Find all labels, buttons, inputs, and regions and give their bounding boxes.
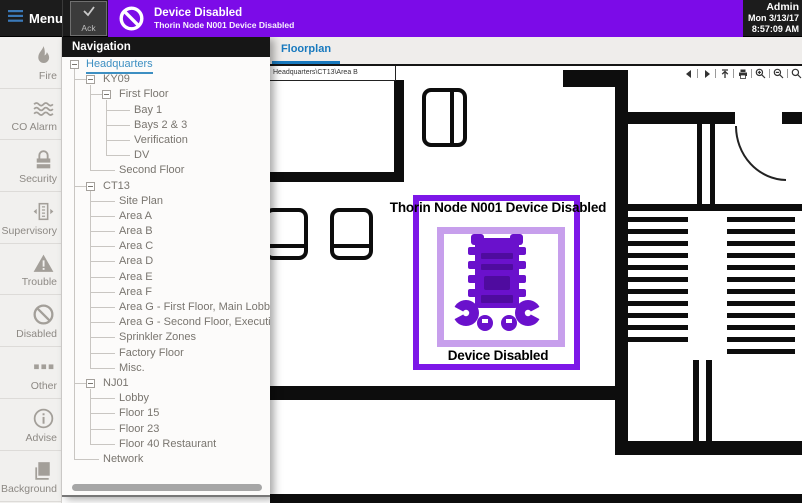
- tree-node-label: Area G - Second Floor, Executive Suites: [119, 315, 270, 330]
- sidebar-item-label: Advise: [25, 432, 57, 444]
- tree-connector-tick: [90, 94, 102, 95]
- tree-connector-tick: [74, 383, 86, 384]
- tree-node-label: Area F: [119, 285, 152, 300]
- time-label: 8:57:09 AM: [748, 24, 799, 35]
- tree-connector-tick: [90, 261, 115, 262]
- tree-node-label: Lobby: [119, 391, 149, 406]
- tree-node-label: Area C: [119, 239, 153, 254]
- hamburger-icon: [8, 9, 23, 27]
- tree-node-label: CT13: [103, 179, 130, 194]
- tree-connector-tick: [90, 322, 115, 323]
- tree-node-label: NJ01: [103, 376, 129, 391]
- collapse-expander-icon[interactable]: [102, 90, 111, 99]
- disabled-ban-icon: [118, 5, 145, 32]
- menu-label: Menu: [29, 11, 63, 26]
- date-label: Mon 3/13/17: [748, 13, 799, 24]
- tree-node-label: Area A: [119, 209, 152, 224]
- tree-node-area-g-second-floor-executive-suites[interactable]: Area G - Second Floor, Executive Suites: [62, 315, 270, 330]
- fire-icon: [31, 44, 56, 69]
- tree-node-label: Site Plan: [119, 194, 163, 209]
- tree-node-label: Factory Floor: [119, 346, 184, 361]
- navigation-panel: Navigation HeadquartersKY09First FloorBa…: [62, 37, 270, 497]
- tree-node-ct13[interactable]: CT13: [62, 179, 270, 194]
- tree-node-label: Misc.: [119, 361, 145, 376]
- tree-node-label: Area D: [119, 254, 153, 269]
- navigation-tree: HeadquartersKY09First FloorBay 1Bays 2 &…: [62, 57, 270, 483]
- toolbar-separator: [733, 69, 734, 78]
- tree-node-label: Area B: [119, 224, 153, 239]
- device-bottom-label: Device Disabled: [338, 348, 658, 363]
- tree-node-headquarters[interactable]: Headquarters: [62, 57, 270, 72]
- tree-node-label: DV: [134, 148, 149, 163]
- alert-title: Device Disabled: [154, 7, 294, 20]
- tree-node-network[interactable]: Network: [62, 452, 270, 467]
- navigation-panel-title: Navigation: [62, 37, 270, 57]
- tree-connector-tick: [74, 459, 99, 460]
- tab-bar: Floorplan: [270, 37, 802, 66]
- tree-node-verification[interactable]: Verification: [62, 133, 270, 148]
- tab-floorplan[interactable]: Floorplan: [272, 37, 340, 64]
- toolbar-separator: [697, 69, 698, 78]
- navigation-horizontal-scrollbar[interactable]: [72, 484, 262, 491]
- tab-floorplan-label: Floorplan: [272, 37, 340, 61]
- tree-connector-tick: [90, 292, 115, 293]
- toolbar-separator: [769, 69, 770, 78]
- tree-node-area-f[interactable]: Area F: [62, 285, 270, 300]
- tree-node-lobby[interactable]: Lobby: [62, 391, 270, 406]
- toolbar-forward-button[interactable]: [701, 68, 712, 79]
- trouble-icon: [31, 251, 56, 276]
- tree-node-area-g-first-floor-main-lobby[interactable]: Area G - First Floor, Main Lobby: [62, 300, 270, 315]
- topbar-separator: [62, 0, 63, 37]
- tree-connector-tick: [90, 337, 115, 338]
- other-icon: [31, 354, 56, 379]
- toolbar-zoom-out-button[interactable]: [773, 68, 784, 79]
- sidebar-item-label: Other: [31, 380, 57, 392]
- sidebar-item-supervisory[interactable]: Supervisory: [0, 192, 61, 244]
- ack-button[interactable]: Ack: [70, 1, 107, 36]
- top-bar: Menu Ack Device Disabled Thorin Node N00…: [0, 0, 802, 37]
- tree-node-label: Area G - First Floor, Main Lobby: [119, 300, 270, 315]
- sidebar-item-label: Supervisory: [2, 225, 57, 237]
- tree-connector-tick: [74, 79, 86, 80]
- tree-connector-tick: [106, 155, 130, 156]
- main-area: Floorplan Headquarters\CT13\Area B: [270, 37, 802, 503]
- tree-node-label: KY09: [103, 72, 130, 87]
- alert-banner[interactable]: Device Disabled Thorin Node N001 Device …: [108, 0, 743, 37]
- status-area: Admin Mon 3/13/17 8:57:09 AM: [748, 2, 799, 35]
- tree-connector-tick: [90, 398, 115, 399]
- user-name: Admin: [748, 2, 799, 13]
- toolbar-separator: [787, 69, 788, 78]
- tree-node-misc[interactable]: Misc.: [62, 361, 270, 376]
- tree-connector-tick: [90, 170, 115, 171]
- tree-connector-tick: [90, 413, 115, 414]
- sidebar-item-label: Fire: [39, 70, 57, 82]
- sidebar-item-disabled[interactable]: Disabled: [0, 295, 61, 347]
- tree-connector-tick: [90, 429, 115, 430]
- toolbar-zoom-fit-button[interactable]: [791, 68, 802, 79]
- tree-node-label: Floor 15: [119, 406, 159, 421]
- tree-node-area-d[interactable]: Area D: [62, 254, 270, 269]
- tree-connector-tick: [90, 201, 115, 202]
- toolbar-up-button[interactable]: [719, 68, 730, 79]
- tree-node-label: Second Floor: [119, 163, 184, 178]
- sidebar-item-trouble[interactable]: Trouble: [0, 244, 61, 296]
- co-alarm-icon: [31, 96, 56, 121]
- background-icon: [31, 458, 56, 483]
- advise-icon: [31, 406, 56, 431]
- security-icon: [31, 147, 56, 172]
- tree-node-sprinkler-zones[interactable]: Sprinkler Zones: [62, 330, 270, 345]
- floorplan-toolbar: [683, 68, 802, 79]
- sidebar-item-security[interactable]: Security: [0, 140, 61, 192]
- collapse-expander-icon[interactable]: [86, 379, 95, 388]
- sidebar-item-label: Security: [19, 173, 57, 185]
- tree-connector-tick: [90, 444, 115, 445]
- tree-connector-tick: [90, 353, 115, 354]
- tree-node-bays-2-3[interactable]: Bays 2 & 3: [62, 118, 270, 133]
- tree-node-area-b[interactable]: Area B: [62, 224, 270, 239]
- collapse-expander-icon[interactable]: [86, 75, 95, 84]
- tree-node-area-c[interactable]: Area C: [62, 239, 270, 254]
- tree-connector-tick: [106, 125, 130, 126]
- application-window: Menu Ack Device Disabled Thorin Node N00…: [0, 0, 802, 503]
- tree-connector-tick: [90, 307, 115, 308]
- tree-node-label: Floor 40 Restaurant: [119, 437, 216, 452]
- tree-node-label: Area E: [119, 270, 153, 285]
- tree-node-floor-40-restaurant[interactable]: Floor 40 Restaurant: [62, 437, 270, 452]
- tree-node-nj01[interactable]: NJ01: [62, 376, 270, 391]
- tree-node-label: Verification: [134, 133, 188, 148]
- disabled-device-icon[interactable]: [451, 233, 543, 331]
- tree-node-ky09[interactable]: KY09: [62, 72, 270, 87]
- toolbar-back-button[interactable]: [683, 68, 694, 79]
- toolbar-print-button[interactable]: [737, 68, 748, 79]
- tree-node-area-a[interactable]: Area A: [62, 209, 270, 224]
- floorplan-breadcrumb: Headquarters\CT13\Area B: [270, 66, 396, 81]
- tree-node-label: Sprinkler Zones: [119, 330, 196, 345]
- disabled-icon: [31, 302, 56, 327]
- toolbar-separator: [715, 69, 716, 78]
- tree-connector-tick: [106, 110, 130, 111]
- tree-connector-tick: [90, 277, 115, 278]
- tree-connector-tick: [90, 231, 115, 232]
- menu-button[interactable]: Menu: [8, 9, 63, 27]
- toolbar-separator: [751, 69, 752, 78]
- check-icon: [81, 4, 97, 22]
- sidebar-item-label: Background: [1, 483, 57, 495]
- tree-node-second-floor[interactable]: Second Floor: [62, 163, 270, 178]
- ack-label: Ack: [81, 23, 95, 33]
- tree-node-first-floor[interactable]: First Floor: [62, 87, 270, 102]
- tree-connector-tick: [90, 368, 115, 369]
- device-top-label: Thorin Node N001 Device Disabled: [338, 200, 658, 215]
- tree-node-floor-23[interactable]: Floor 23: [62, 422, 270, 437]
- collapse-expander-icon[interactable]: [70, 60, 79, 69]
- tree-node-dv[interactable]: DV: [62, 148, 270, 163]
- sidebar-item-fire[interactable]: Fire: [0, 37, 61, 89]
- tree-node-label: Floor 23: [119, 422, 159, 437]
- tree-connector-tick: [90, 216, 115, 217]
- sidebar-item-label: Trouble: [22, 276, 57, 288]
- alert-subtitle: Thorin Node N001 Device Disabled: [154, 20, 294, 30]
- tree-node-label: Network: [103, 452, 143, 467]
- sidebar-item-label: Disabled: [16, 328, 57, 340]
- floorplan-canvas[interactable]: Headquarters\CT13\Area B: [270, 66, 802, 503]
- tree-connector-tick: [74, 186, 86, 187]
- event-category-sidebar: Fire CO Alarm Security Supervisory Troub…: [0, 37, 62, 503]
- tree-connector-tick: [106, 140, 130, 141]
- sidebar-item-advise[interactable]: Advise: [0, 399, 61, 451]
- sidebar-item-co-alarm[interactable]: CO Alarm: [0, 89, 61, 141]
- supervisory-icon: [31, 199, 56, 224]
- toolbar-zoom-in-button[interactable]: [755, 68, 766, 79]
- tree-node-label: Bays 2 & 3: [134, 118, 187, 133]
- tree-node-site-plan[interactable]: Site Plan: [62, 194, 270, 209]
- collapse-expander-icon[interactable]: [86, 182, 95, 191]
- sidebar-item-other[interactable]: Other: [0, 347, 61, 399]
- tree-node-floor-15[interactable]: Floor 15: [62, 406, 270, 421]
- tab-active-indicator: [272, 61, 340, 64]
- tree-node-factory-floor[interactable]: Factory Floor: [62, 346, 270, 361]
- tree-connector-tick: [90, 246, 115, 247]
- tree-node-label: Bay 1: [134, 103, 162, 118]
- tree-node-bay-1[interactable]: Bay 1: [62, 103, 270, 118]
- sidebar-item-label: CO Alarm: [11, 121, 57, 133]
- sidebar-item-background[interactable]: Background: [0, 451, 61, 503]
- tree-node-area-e[interactable]: Area E: [62, 270, 270, 285]
- tree-node-label: First Floor: [119, 87, 169, 102]
